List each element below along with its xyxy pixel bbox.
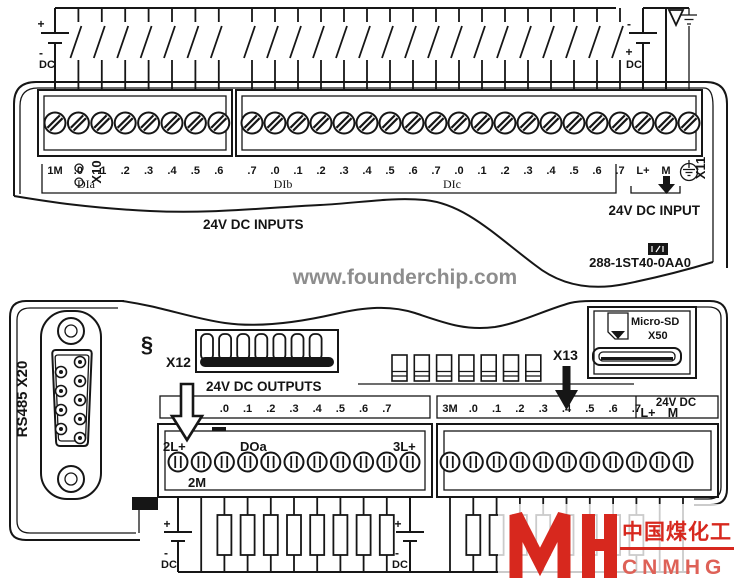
rs485-db9-connector [41, 311, 101, 499]
callout-arrow-x13-icon [555, 366, 578, 410]
input-switch-wire [70, 8, 623, 90]
sd-label-2: X50 [648, 330, 668, 342]
load-resistor [310, 515, 324, 555]
terminal-label: .5 [336, 403, 345, 415]
terminal-screw [610, 113, 631, 134]
load-resistor [466, 515, 480, 555]
terminal-label: .1 [293, 165, 302, 177]
terminal-screw [401, 453, 420, 472]
terminal-label: 1M [47, 165, 62, 177]
comb-tooth [237, 334, 249, 360]
terminal-screw [541, 113, 562, 134]
terminal-label: .7 [382, 403, 391, 415]
black-badge [648, 243, 668, 255]
strip-label-2lplus: 2L+ [163, 439, 186, 454]
label-m: M [661, 165, 670, 177]
vent-slot [459, 355, 474, 381]
rs485-port-label: RS485 X20 [14, 361, 31, 438]
comb-tooth [219, 334, 231, 360]
caption-power-input: 24V DC INPUT [608, 203, 700, 218]
terminal-label: .4 [546, 165, 556, 177]
terminal-screw [169, 453, 188, 472]
vent-slot [392, 355, 407, 381]
connector-x12-label: X12 [166, 354, 191, 370]
sd-label-1: Micro-SD [631, 316, 679, 328]
group-label-dib: DIb [274, 177, 293, 191]
db9-pin-dot [59, 370, 63, 374]
terminal-label: .6 [592, 165, 601, 177]
terminal-screw [354, 453, 373, 472]
caption-outputs: 24V DC OUTPUTS [206, 379, 322, 394]
terminal-label: .0 [220, 403, 229, 415]
input-terminal-labels: 1M.0.1.2.3.4.5.6.7.0.1.2.3.4.5.6.7.0.1.2… [47, 165, 624, 177]
terminal-screw [265, 113, 286, 134]
terminal-label: .3 [289, 403, 298, 415]
terminal-screw [510, 453, 529, 472]
out-dc-right-label: DC [392, 559, 408, 571]
terminal-screw [115, 113, 136, 134]
caption-inputs: 24V DC INPUTS [203, 217, 304, 232]
out-dc-left-label: DC [161, 559, 177, 571]
cnmhg-watermark: 中国煤化工 CNMHG [498, 504, 736, 583]
terminal-label: .2 [500, 165, 509, 177]
terminal-label: .1 [243, 403, 252, 415]
terminal-screw [633, 113, 654, 134]
terminal-label: .2 [266, 403, 275, 415]
terminal-screw [580, 453, 599, 472]
out-dc-left-minus: - [164, 546, 168, 560]
comb-tooth [310, 334, 322, 360]
terminal-screw [288, 113, 309, 134]
terminal-label: .0 [74, 165, 83, 177]
db9-pin-dot [59, 427, 63, 431]
comb-tooth [255, 334, 267, 360]
terminal-label: .6 [359, 403, 368, 415]
db9-pin-dot [78, 398, 82, 402]
input-switch-wires [70, 8, 623, 90]
terminal-screw [311, 113, 332, 134]
terminal-label: .0 [454, 165, 463, 177]
db9-pin-dot [59, 408, 63, 412]
dc-source-right [629, 8, 689, 90]
module-foot [132, 497, 158, 510]
terminal-screw [45, 113, 66, 134]
terminal-screw [238, 453, 257, 472]
terminal-label: .3 [539, 403, 548, 415]
terminal-screw [674, 453, 693, 472]
input-terminal-screws [45, 113, 700, 134]
terminal-screw [357, 113, 378, 134]
vent-slot [414, 355, 429, 381]
dc-left-minus: - [39, 46, 43, 60]
db9-mount-screw [58, 318, 84, 344]
terminal-screw [380, 113, 401, 134]
group-brackets [42, 164, 680, 193]
terminal-label: .2 [121, 165, 130, 177]
terminal-screw [192, 453, 211, 472]
db9-pin-dot [78, 360, 82, 364]
terminal-screw [518, 113, 539, 134]
torn-edge-bottom-module [122, 301, 690, 328]
terminal-screw [441, 453, 460, 472]
connector-x10-label: X10 [89, 160, 104, 183]
terminal-screw [564, 113, 585, 134]
load-resistor [217, 515, 231, 555]
comb-tooth [201, 334, 213, 360]
terminal-screw [68, 113, 89, 134]
output-terminal-screws [169, 453, 693, 472]
terminal-screw [534, 453, 553, 472]
terminal-label: .2 [316, 165, 325, 177]
terminal-label: .1 [492, 403, 501, 415]
db9-mount-screw [58, 466, 84, 492]
sensor-m: M [668, 406, 678, 420]
vent-slot [481, 355, 496, 381]
terminal-screw [403, 113, 424, 134]
strip-label-3lplus: 3L+ [393, 439, 416, 454]
terminal-label: .7 [247, 165, 256, 177]
terminal-label: .4 [362, 165, 372, 177]
terminal-label: .4 [313, 403, 323, 415]
part-number: 288-1ST40-0AA0 [589, 255, 691, 270]
load-resistor [333, 515, 347, 555]
terminal-screw [377, 453, 396, 472]
terminal-screw [426, 113, 447, 134]
terminal-screw [464, 453, 483, 472]
cnmhg-cn-text: 中国煤化工 [622, 520, 732, 544]
terminal-label: .4 [167, 165, 177, 177]
terminal-label: .6 [609, 403, 618, 415]
dc-right-label: DC [626, 59, 642, 71]
terminal-label: .5 [569, 165, 578, 177]
comb-tooth [292, 334, 304, 360]
terminal-screw [331, 453, 350, 472]
terminal-screw [308, 453, 327, 472]
terminal-screw [449, 113, 470, 134]
group-label-dic: DIc [443, 177, 461, 191]
terminal-label: .7 [615, 165, 624, 177]
db9-pin-dot [78, 436, 82, 440]
terminal-label: .0 [270, 165, 279, 177]
load-resistor [380, 515, 394, 555]
load-resistor [264, 515, 278, 555]
terminal-label: .6 [214, 165, 223, 177]
sensor-supply-arrow-icon [658, 176, 675, 194]
micro-sd-slot: Micro-SD X50 [588, 307, 696, 378]
terminal-screw [656, 113, 677, 134]
terminal-label: .1 [477, 165, 486, 177]
terminal-screw [679, 113, 700, 134]
x12-comb-connector [196, 330, 338, 372]
load-resistor [357, 515, 371, 555]
terminal-screw [487, 453, 506, 472]
terminal-screw [334, 113, 355, 134]
terminal-label: .3 [339, 165, 348, 177]
terminal-screw [650, 453, 669, 472]
db9-pin-dot [59, 389, 63, 393]
terminal-label: .2 [515, 403, 524, 415]
strip-label-doa: DOa [240, 439, 268, 454]
terminal-label: .5 [585, 403, 594, 415]
terminal-screw [162, 113, 183, 134]
supply-triangle-icon [669, 10, 683, 25]
terminal-screw [472, 113, 493, 134]
terminal-label: .0 [469, 403, 478, 415]
terminal-screw [215, 453, 234, 472]
db9-pin-dot [78, 417, 82, 421]
terminal-label: .7 [431, 165, 440, 177]
db9-pin-dot [78, 379, 82, 383]
terminal-label: 3M [442, 403, 457, 415]
terminal-screw [285, 453, 304, 472]
plc-wiring-diagram: + - DC - + DC 1M.0.1.2.3.4.5.6.7.0.1.2.3… [0, 0, 736, 583]
output-terminal-strips: 2L+ DOa 3L+ 2M [158, 424, 718, 497]
terminal-label: .6 [408, 165, 417, 177]
terminal-screw [495, 113, 516, 134]
terminal-label: .5 [385, 165, 394, 177]
out-dc-right-plus: + [394, 517, 401, 531]
vent-slot [437, 355, 452, 381]
label-lplus: L+ [636, 165, 649, 177]
connector-x11-label: X11 [693, 157, 708, 179]
terminal-label: .5 [191, 165, 200, 177]
load-resistor [241, 515, 255, 555]
vent-slot [504, 355, 519, 381]
terminal-screw [587, 113, 608, 134]
dc-source-left [41, 8, 69, 90]
dc-left-plus: + [37, 17, 44, 31]
vent-slots [392, 355, 541, 381]
terminal-screw [557, 453, 576, 472]
terminal-screw [627, 453, 646, 472]
load-resistor [287, 515, 301, 555]
connector-x13-label: X13 [553, 347, 578, 363]
vent-slot [526, 355, 541, 381]
dc-right-top: - [627, 17, 631, 31]
output-label-bands: .0.1.2.3.4.5.6.73M.0.1.2.3.4.5.6.7 24V D… [160, 396, 718, 420]
db9-pins [56, 357, 86, 444]
earth-ground-icon [681, 8, 697, 90]
terminal-screw [208, 113, 229, 134]
strip-label-2m: 2M [188, 475, 206, 490]
dc-left-label: DC [39, 59, 55, 71]
terminal-screw [604, 453, 623, 472]
terminal-screw [242, 113, 263, 134]
terminal-label: .3 [523, 165, 532, 177]
terminal-label: .3 [144, 165, 153, 177]
out-dc-left-plus: + [163, 517, 170, 531]
site-watermark: www.founderchip.com [292, 266, 517, 289]
terminal-screw [185, 113, 206, 134]
terminal-screw [138, 113, 159, 134]
wiring-diagram-page: + - DC - + DC 1M.0.1.2.3.4.5.6.7.0.1.2.3… [0, 0, 736, 583]
terminal-screw [261, 453, 280, 472]
out-dc-right-minus: - [395, 546, 399, 560]
terminal-screw [91, 113, 112, 134]
sensor-lplus: L+ [641, 406, 656, 420]
comb-tooth [273, 334, 285, 360]
clip-icon: § [141, 332, 153, 357]
cnmhg-en-text: CNMHG [622, 556, 726, 579]
dc-right-bottom: + [625, 45, 632, 59]
